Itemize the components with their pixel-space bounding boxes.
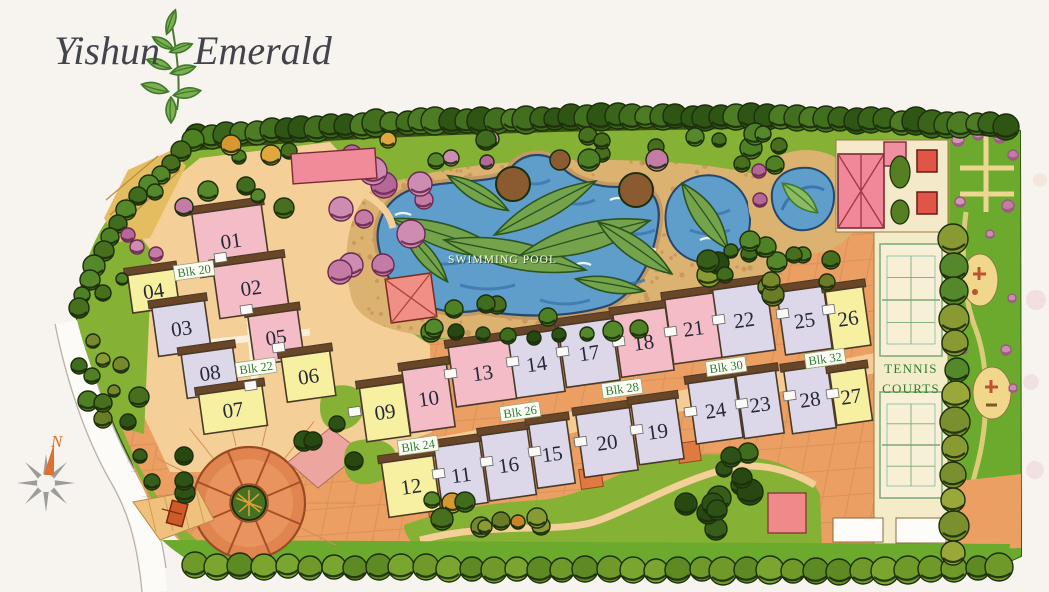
svg-text:TENNIS: TENNIS	[884, 361, 937, 376]
svg-text:N: N	[50, 432, 64, 451]
svg-text:13: 13	[470, 360, 494, 387]
svg-text:24: 24	[703, 397, 728, 424]
svg-text:17: 17	[577, 340, 601, 367]
svg-text:28: 28	[798, 386, 822, 413]
svg-text:07: 07	[221, 397, 245, 424]
svg-text:02: 02	[239, 275, 263, 302]
svg-text:08: 08	[198, 360, 222, 387]
svg-text:21: 21	[681, 315, 705, 342]
svg-text:11: 11	[449, 462, 472, 489]
svg-text:19: 19	[645, 418, 669, 445]
svg-text:COURTS: COURTS	[882, 381, 940, 396]
svg-text:14: 14	[524, 351, 549, 378]
svg-text:12: 12	[399, 473, 423, 500]
svg-text:01: 01	[219, 228, 243, 255]
svg-text:Yishun: Yishun	[54, 28, 160, 73]
svg-text:20: 20	[595, 429, 619, 456]
svg-text:03: 03	[169, 315, 193, 342]
svg-text:SWIMMING POOL: SWIMMING POOL	[448, 254, 557, 266]
svg-text:06: 06	[296, 363, 320, 390]
svg-text:Emerald: Emerald	[193, 28, 333, 73]
svg-text:10: 10	[416, 385, 440, 412]
svg-text:23: 23	[748, 391, 772, 418]
svg-text:22: 22	[732, 307, 756, 334]
svg-text:09: 09	[373, 399, 397, 426]
svg-text:26: 26	[836, 305, 860, 332]
svg-text:25: 25	[792, 307, 816, 334]
svg-text:16: 16	[496, 452, 520, 479]
svg-text:27: 27	[839, 383, 863, 410]
svg-text:15: 15	[540, 441, 564, 468]
